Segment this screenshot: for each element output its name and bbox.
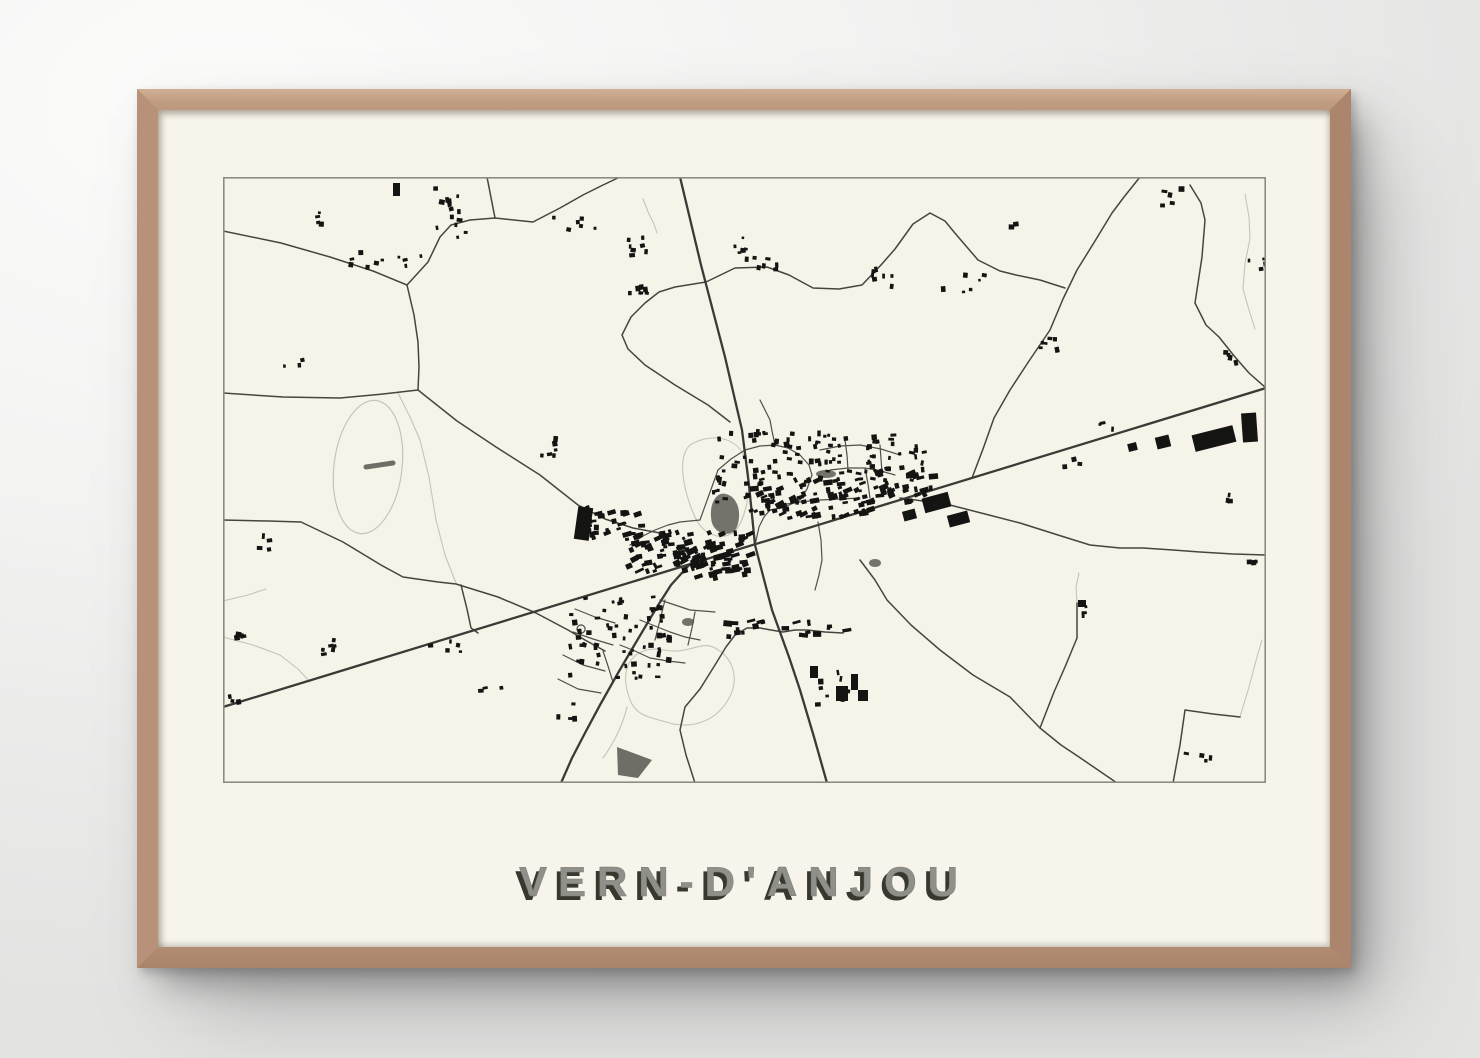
frame-edge-top bbox=[137, 89, 1351, 110]
frame-edge-bottom bbox=[137, 947, 1351, 968]
frame-edge-right bbox=[1330, 89, 1351, 968]
poster-mat: VERN-D'ANJOU bbox=[158, 110, 1330, 947]
map-border bbox=[224, 178, 1265, 782]
frame-edge-left bbox=[137, 89, 158, 968]
poster-title: VERN-D'ANJOU bbox=[158, 858, 1330, 906]
wall: VERN-D'ANJOU bbox=[0, 0, 1480, 1058]
map-panel bbox=[223, 177, 1266, 783]
town-map-graphic bbox=[223, 177, 1266, 783]
picture-frame: VERN-D'ANJOU bbox=[137, 89, 1351, 968]
